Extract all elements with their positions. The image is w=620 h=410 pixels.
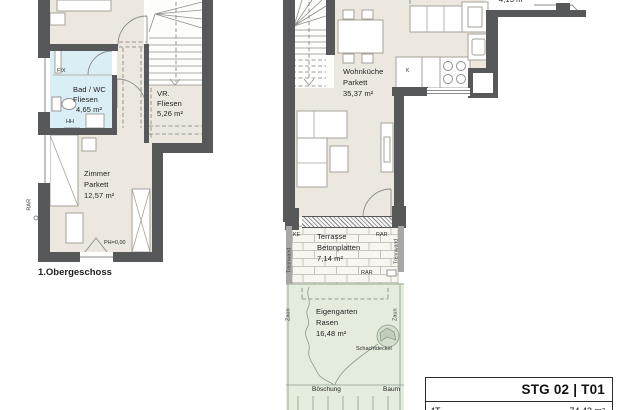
wall-segment bbox=[326, 0, 335, 55]
wall-segment bbox=[202, 0, 213, 153]
room-label-zimmer-name: Zimmer bbox=[84, 170, 110, 178]
label-hh: HH bbox=[66, 120, 74, 126]
label-rar-terrace-bottom: RAR bbox=[361, 271, 373, 277]
room-label-terrasse-area: 7,14 m² bbox=[317, 255, 343, 263]
label-schachtdeckel: Schachtdeckel bbox=[356, 347, 392, 353]
room-label-vr-name: VR. bbox=[157, 90, 170, 98]
wall-segment bbox=[38, 252, 80, 262]
window bbox=[40, 58, 50, 112]
window bbox=[80, 252, 113, 262]
label-boeschung: Böschung bbox=[312, 387, 341, 394]
wall-segment bbox=[486, 10, 586, 17]
room-label-wohnkueche-surface: Parkett bbox=[343, 79, 367, 87]
room-label-bad-surface: Fliesen bbox=[73, 96, 98, 104]
label-kitchen-k: K bbox=[406, 69, 409, 74]
label-ph: PH=0,00 bbox=[104, 241, 126, 247]
label-rar-wall: RAR bbox=[27, 195, 33, 215]
wall-segment bbox=[152, 143, 163, 262]
label-zaun-left: Zaun bbox=[286, 303, 292, 327]
wall-segment bbox=[392, 206, 406, 228]
wall-pillar-inner bbox=[473, 73, 493, 93]
wall-segment bbox=[394, 95, 404, 215]
label-trennwand-left: Trennwand bbox=[288, 241, 293, 281]
label-ke: KE bbox=[293, 233, 300, 239]
label-zaun-right: Zaun bbox=[393, 303, 399, 327]
label-baum: Baum bbox=[383, 387, 400, 394]
wall-segment bbox=[283, 0, 295, 222]
wall-segment bbox=[556, 3, 570, 10]
window bbox=[427, 88, 470, 96]
title-block-row2-left: 4T bbox=[430, 406, 441, 410]
room-label-zimmer-area: 12,57 m² bbox=[84, 192, 114, 200]
unit-code: STG 02 | T01 bbox=[522, 382, 605, 397]
room-label-bad-name: Bad / WC bbox=[73, 86, 106, 94]
room-label-wohnkueche-name: Wohnküche bbox=[343, 68, 383, 76]
label-fix: FIX bbox=[57, 69, 66, 75]
wall-segment bbox=[112, 75, 117, 128]
room-label-vr-area: 5,26 m² bbox=[157, 110, 183, 118]
label-rar-terrace-top: RAR bbox=[376, 233, 388, 239]
room-label-wohnkueche-area: 35,37 m² bbox=[343, 90, 373, 98]
plan-linework bbox=[0, 0, 620, 410]
title-block-row2-right: 74,43 m² bbox=[569, 406, 605, 410]
room-label-vr-surface: Fliesen bbox=[157, 100, 182, 108]
wall-segment bbox=[46, 44, 118, 51]
room-label-bad-area: 4,65 m² bbox=[76, 106, 102, 114]
label-neighbor-area-clipped: 4,13 m² bbox=[499, 0, 525, 4]
title-block-unit-row: STG 02 | T01 bbox=[426, 378, 612, 402]
room-label-terrasse-surface: Betonplatten bbox=[317, 244, 360, 252]
title-block: STG 02 | T01 4T 74,43 m² bbox=[425, 377, 613, 410]
wall-segment bbox=[38, 183, 50, 262]
room-label-zimmer-surface: Parkett bbox=[84, 181, 108, 189]
wall-segment bbox=[46, 128, 117, 135]
label-trennwand-right: Trennwand bbox=[395, 232, 400, 272]
title-block-second-row: 4T 74,43 m² bbox=[426, 402, 612, 410]
room-label-eigengarten-surface: Rasen bbox=[316, 319, 338, 327]
window bbox=[40, 135, 50, 183]
floorplan-page: FIX Bad / WC Fliesen 4,65 m² HH VR. Flie… bbox=[0, 0, 620, 410]
terrace-door-sill bbox=[302, 216, 392, 228]
room-label-eigengarten-area: 16,48 m² bbox=[316, 330, 346, 338]
wall-segment bbox=[144, 44, 149, 143]
room-label-terrasse-name: Terrasse bbox=[317, 233, 347, 241]
room-label-eigengarten-name: Eigengarten bbox=[316, 308, 358, 316]
floor-title-obergeschoss: 1.Obergeschoss bbox=[38, 268, 112, 278]
